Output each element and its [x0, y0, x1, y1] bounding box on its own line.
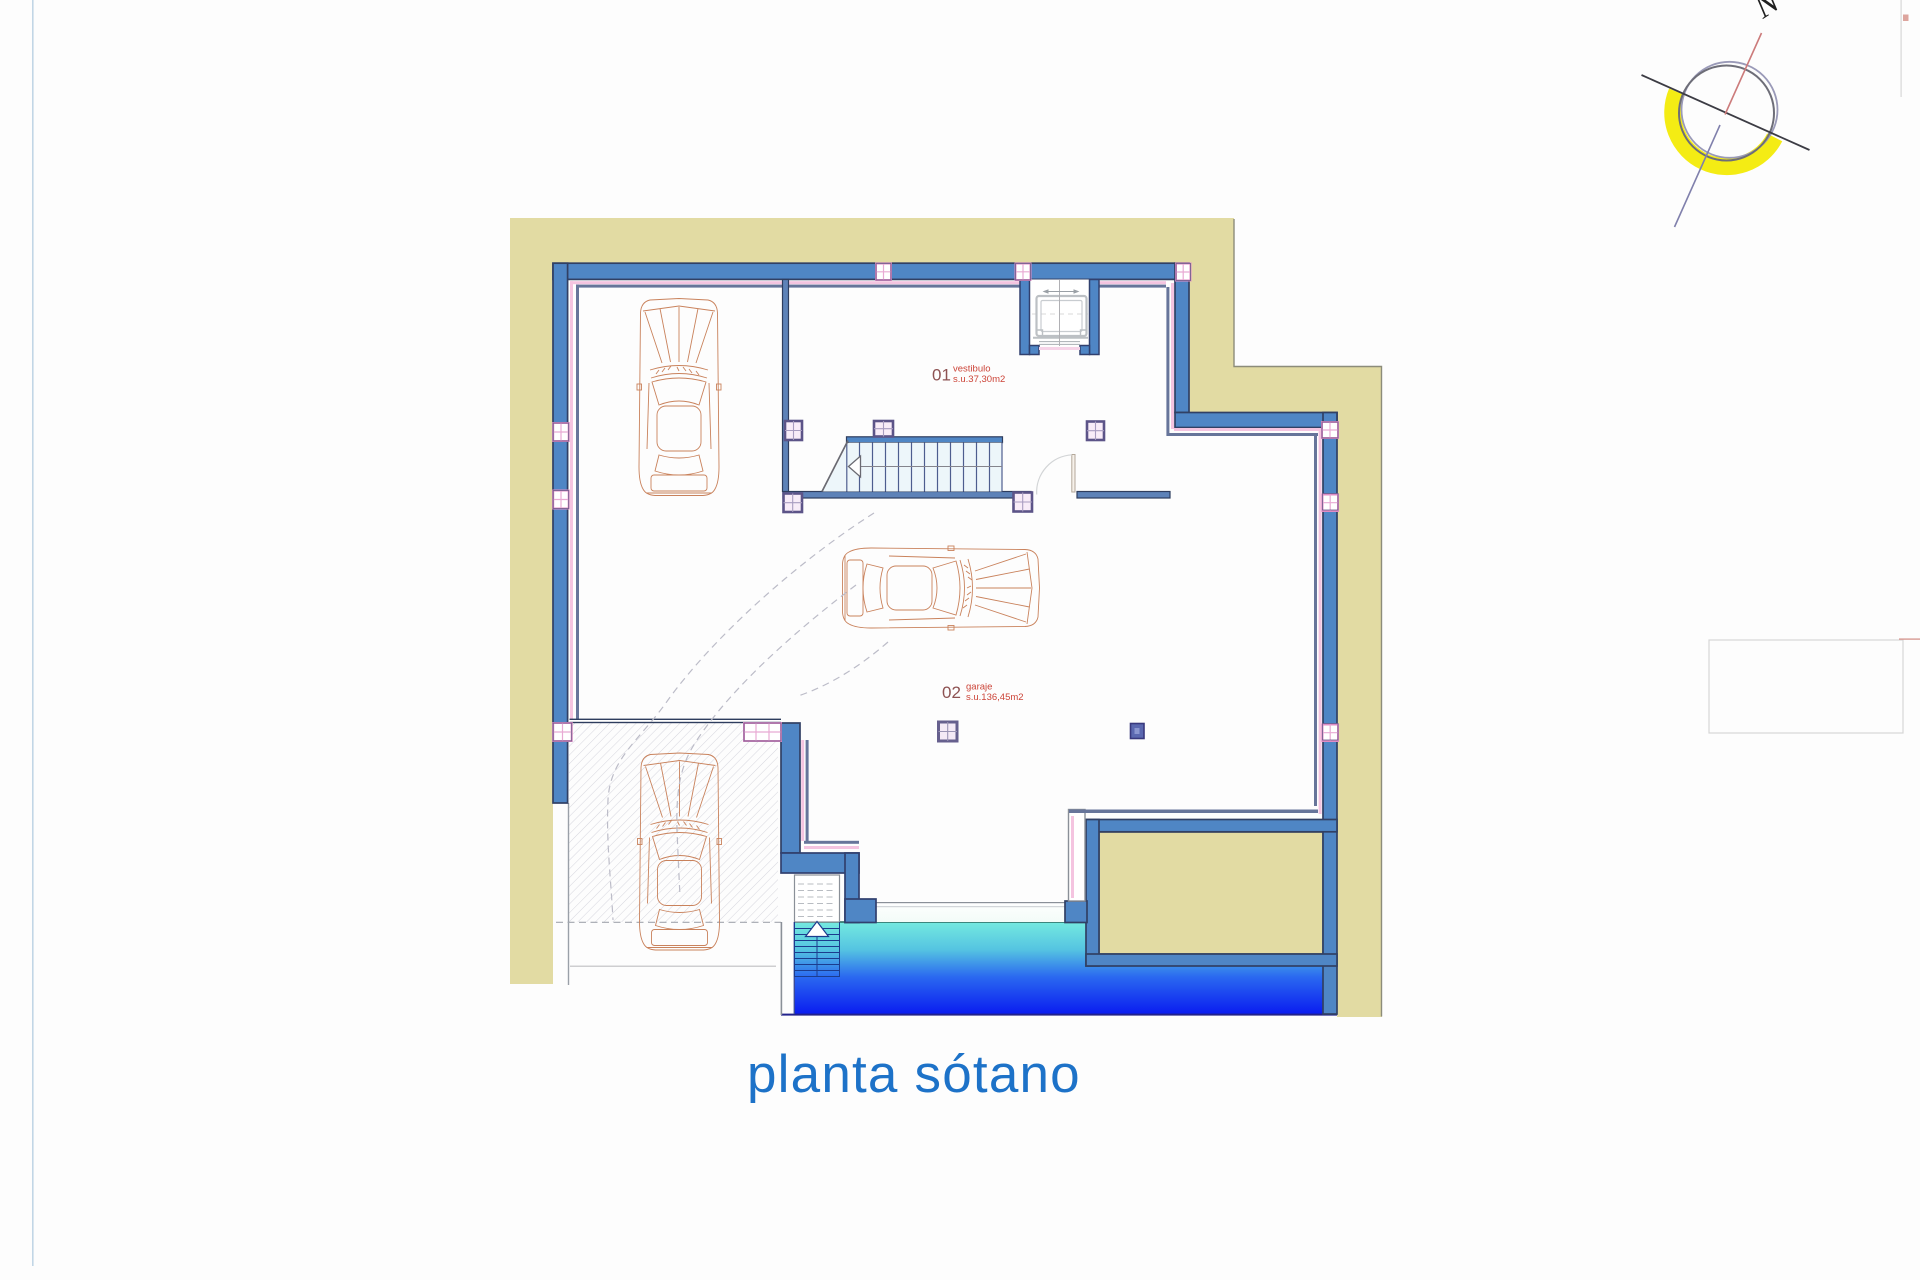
svg-text:01: 01: [932, 366, 951, 385]
svg-text:planta sótano: planta sótano: [747, 1045, 1081, 1104]
svg-text:garaje: garaje: [966, 682, 992, 693]
svg-text:s.u.37,30m2: s.u.37,30m2: [953, 374, 1005, 385]
svg-text:s.u.136,45m2: s.u.136,45m2: [966, 692, 1024, 703]
svg-text:02: 02: [942, 683, 961, 702]
svg-text:vestibulo: vestibulo: [953, 364, 991, 375]
